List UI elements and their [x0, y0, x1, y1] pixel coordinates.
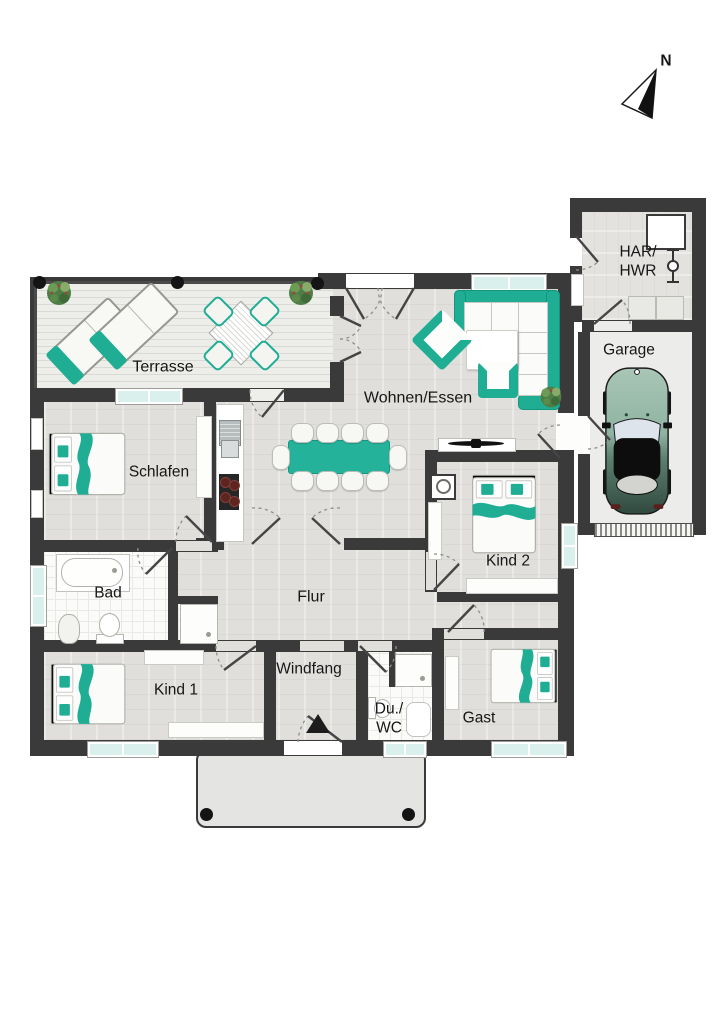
room-label-windfang: Windfang [276, 661, 341, 680]
window-gast [492, 742, 566, 757]
room-label-wohnen-essen: Wohnen/Essen [364, 388, 472, 407]
wall [178, 596, 218, 604]
opening-schlafen-door [176, 541, 212, 551]
niche-har [571, 274, 584, 306]
dining-chair-icon [272, 445, 290, 470]
wall [344, 538, 425, 550]
wall [330, 296, 344, 316]
compass-north-label: N [660, 53, 671, 72]
opening-terrace-doors [346, 274, 414, 288]
shower-icon [180, 604, 218, 644]
dining-chair-icon [341, 471, 364, 491]
room-label-flur: Flur [297, 587, 325, 606]
shelf-kind1 [168, 722, 264, 738]
window-kind2 [562, 524, 577, 568]
dining-chair-icon [366, 423, 389, 443]
wall [570, 198, 582, 238]
terrace-post [311, 277, 324, 290]
shelf-kind2 [466, 578, 558, 594]
dining-chair-icon [389, 445, 407, 470]
shower-drain [420, 676, 425, 681]
dining-chair-icon [291, 423, 314, 443]
opening-kind1-door [216, 641, 256, 651]
room-label-duwc-line2: WC [375, 719, 403, 738]
window-kind1 [88, 742, 158, 757]
niche-schlafen-1 [31, 418, 43, 450]
pedestal-sink-icon [58, 614, 80, 644]
wall [692, 198, 706, 535]
room-label-kind1: Kind 1 [154, 682, 198, 701]
opening-windfang [300, 641, 344, 651]
shower-icon [395, 654, 432, 687]
room-label-har-line1: HAR/ [619, 243, 656, 262]
dining-chair-icon [316, 423, 339, 443]
washbasin-circle [436, 479, 451, 494]
toilet-bowl [99, 613, 120, 637]
opening-duwc-door [358, 641, 392, 651]
wall [30, 277, 34, 389]
wall [578, 454, 590, 523]
opening-kitchen-door [250, 389, 284, 401]
terrace-post [171, 276, 184, 289]
north-arrow-icon [608, 46, 688, 126]
opening-har-garage-door [594, 321, 632, 331]
wardrobe-kind2 [428, 502, 442, 560]
kitchen-sink-basin [221, 440, 239, 458]
bathtub-drain [112, 568, 117, 573]
niche-schlafen-2 [31, 490, 43, 518]
window-schlafen-terrasse [116, 389, 182, 404]
wall [570, 198, 706, 212]
garage-door [594, 523, 694, 537]
shelf-kind1 [144, 650, 204, 665]
room-label-schlafen: Schlafen [129, 464, 189, 483]
dining-chair-icon [316, 471, 339, 491]
shower-drain [206, 632, 211, 637]
stove-burner [229, 496, 240, 507]
entry-arrow-icon [306, 714, 330, 733]
room-label-duwc-line1: Du./ [375, 700, 403, 719]
floor-plan: N Terrasse Wohnen/Essen Schlafen Bad Flu… [0, 0, 724, 1024]
dining-table-icon [288, 440, 390, 474]
terrace-post [33, 276, 46, 289]
opening-entry-door [284, 741, 342, 755]
wall [432, 652, 444, 744]
armchair-icon [478, 362, 518, 398]
tv-icon-center [471, 439, 481, 448]
wall [30, 388, 344, 402]
window-wohnen [472, 275, 546, 291]
wall [168, 552, 178, 644]
room-label-bad: Bad [94, 585, 122, 604]
room-label-gast: Gast [463, 710, 496, 729]
dining-chair-icon [291, 471, 314, 491]
dryer-icon [656, 296, 684, 320]
opening-gast-door [444, 629, 484, 639]
dining-chair-icon [366, 471, 389, 491]
wall [330, 362, 344, 388]
porch-post [200, 808, 213, 821]
washbasin-icon [406, 702, 431, 737]
stove-burner [229, 480, 240, 491]
dining-chair-icon [341, 423, 364, 443]
wall [578, 332, 590, 416]
room-label-terrasse: Terrasse [132, 357, 193, 376]
floor-garage [590, 332, 692, 523]
entry-porch [196, 750, 426, 828]
window-bad [31, 566, 46, 626]
room-label-har-line2: HWR [619, 262, 656, 281]
room-label-har-hwr: HAR/ HWR [619, 243, 656, 280]
room-label-garage: Garage [603, 342, 655, 361]
room-label-kind2: Kind 2 [486, 553, 530, 572]
wall [264, 652, 276, 744]
wall [558, 462, 574, 756]
room-label-duwc: Du./ WC [375, 700, 403, 737]
wardrobe-gast [445, 656, 459, 710]
washer-icon [628, 296, 656, 320]
porch-post [402, 808, 415, 821]
wardrobe-schlafen [196, 416, 212, 498]
window-duwc [384, 742, 426, 757]
wall [356, 652, 368, 744]
